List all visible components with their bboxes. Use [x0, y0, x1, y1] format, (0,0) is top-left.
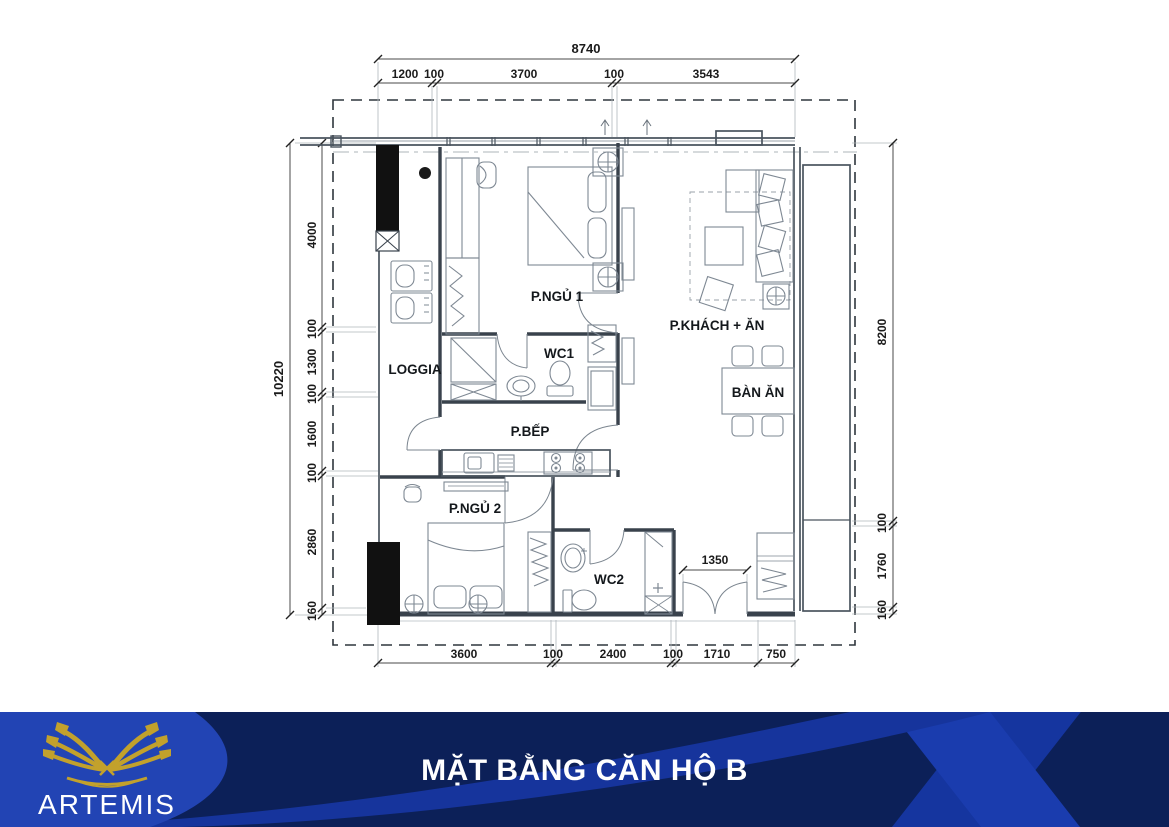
door-loggia	[407, 417, 440, 450]
dim-left-5: 100	[305, 463, 319, 483]
door-wc2	[590, 530, 624, 564]
room-label-dining-table: BÀN ĂN	[732, 385, 785, 400]
coffee-table	[705, 227, 743, 265]
door-bedroom2	[505, 477, 553, 523]
wc1-fixtures	[451, 325, 616, 410]
dim-top-total: 8740	[572, 41, 601, 56]
dim-left-7: 160	[305, 601, 319, 621]
dim-bottom-4: 1710	[704, 647, 731, 661]
bed-1	[528, 167, 612, 265]
dimensions-bottom: 3600 100 2400 100 1710 750	[451, 647, 787, 661]
dim-top-0: 1200	[392, 67, 419, 81]
dim-left-4: 1600	[305, 420, 319, 447]
butterfly-icon	[43, 722, 171, 787]
column-marker-dot	[419, 167, 431, 179]
room-label-living: P.KHÁCH + ĂN	[670, 318, 765, 333]
column-bottom-left	[367, 542, 400, 625]
dim-right-1: 100	[875, 513, 889, 533]
dim-top-3: 100	[604, 67, 624, 81]
dimensions-top: 8740 1200 100 3700 100 3543	[392, 41, 720, 81]
room-label-wc1: WC1	[544, 346, 574, 361]
columns	[367, 145, 431, 625]
bedroom1-furniture	[446, 148, 634, 384]
walls	[378, 143, 850, 614]
vent-arrow-icon	[601, 120, 651, 135]
column-top-left	[376, 145, 399, 231]
room-label-kitchen: P.BẾP	[511, 424, 550, 439]
page: 8740 1200 100 3700 100 3543 10220 4000 1…	[0, 0, 1169, 827]
dim-entry: 1350	[702, 553, 729, 567]
toilet-wc1	[547, 386, 573, 396]
floor-plan: 8740 1200 100 3700 100 3543 10220 4000 1…	[0, 0, 1169, 712]
room-label-wc2: WC2	[594, 572, 624, 587]
door-shower	[645, 532, 663, 547]
dim-bottom-1: 100	[543, 647, 563, 661]
doors	[407, 293, 747, 614]
floor-plan-canvas: 8740 1200 100 3700 100 3543 10220 4000 1…	[0, 0, 1169, 712]
shower-head-icon	[653, 583, 663, 593]
door-bedroom1	[578, 293, 618, 333]
room-label-loggia: LOGGIA	[388, 362, 441, 377]
dim-left-3: 100	[305, 384, 319, 404]
dimensions-right: 8200 100 1760 160	[875, 318, 889, 620]
door-entrance-left	[683, 582, 715, 614]
door-entrance-right	[715, 582, 747, 614]
shower-area	[645, 532, 672, 614]
page-title: MẶT BẰNG CĂN HỘ B	[421, 754, 748, 788]
dim-top-2: 3700	[511, 67, 538, 81]
dim-bottom-2: 2400	[600, 647, 627, 661]
footer-banner: ARTEMIS MẶT BẰNG CĂN HỘ B	[0, 712, 1169, 827]
dim-top-4: 3543	[693, 67, 720, 81]
shaft-box	[376, 231, 399, 251]
room-label-bedroom2: P.NGỦ 2	[449, 501, 501, 516]
loggia-appliances	[391, 261, 432, 323]
dimensions-left: 10220 4000 100 1300 100 1600 100 2860 16…	[271, 221, 319, 621]
room-label-bedroom1: P.NGỦ 1	[531, 289, 584, 304]
dim-left-0: 4000	[305, 221, 319, 248]
artemis-logo: ARTEMIS	[22, 718, 192, 824]
stove	[544, 452, 592, 474]
dim-left-total: 10220	[271, 361, 286, 397]
dim-left-6: 2860	[305, 528, 319, 555]
dim-left-2: 1300	[305, 348, 319, 375]
dim-left-1: 100	[305, 319, 319, 339]
sink-wc1	[507, 376, 535, 396]
brand-name: ARTEMIS	[38, 789, 176, 820]
dim-right-2: 1760	[875, 552, 889, 579]
dim-bottom-3: 100	[663, 647, 683, 661]
dim-right-0: 8200	[875, 318, 889, 345]
wc2-fixtures	[561, 544, 596, 612]
dim-bottom-0: 3600	[451, 647, 478, 661]
entry-cabinet	[757, 533, 794, 599]
dim-bottom-5: 750	[766, 647, 786, 661]
door-wc1	[497, 334, 527, 368]
toilet-wc2	[563, 590, 572, 612]
dim-right-3: 160	[875, 600, 889, 620]
dim-top-1: 100	[424, 67, 444, 81]
side-balcony	[803, 165, 850, 611]
